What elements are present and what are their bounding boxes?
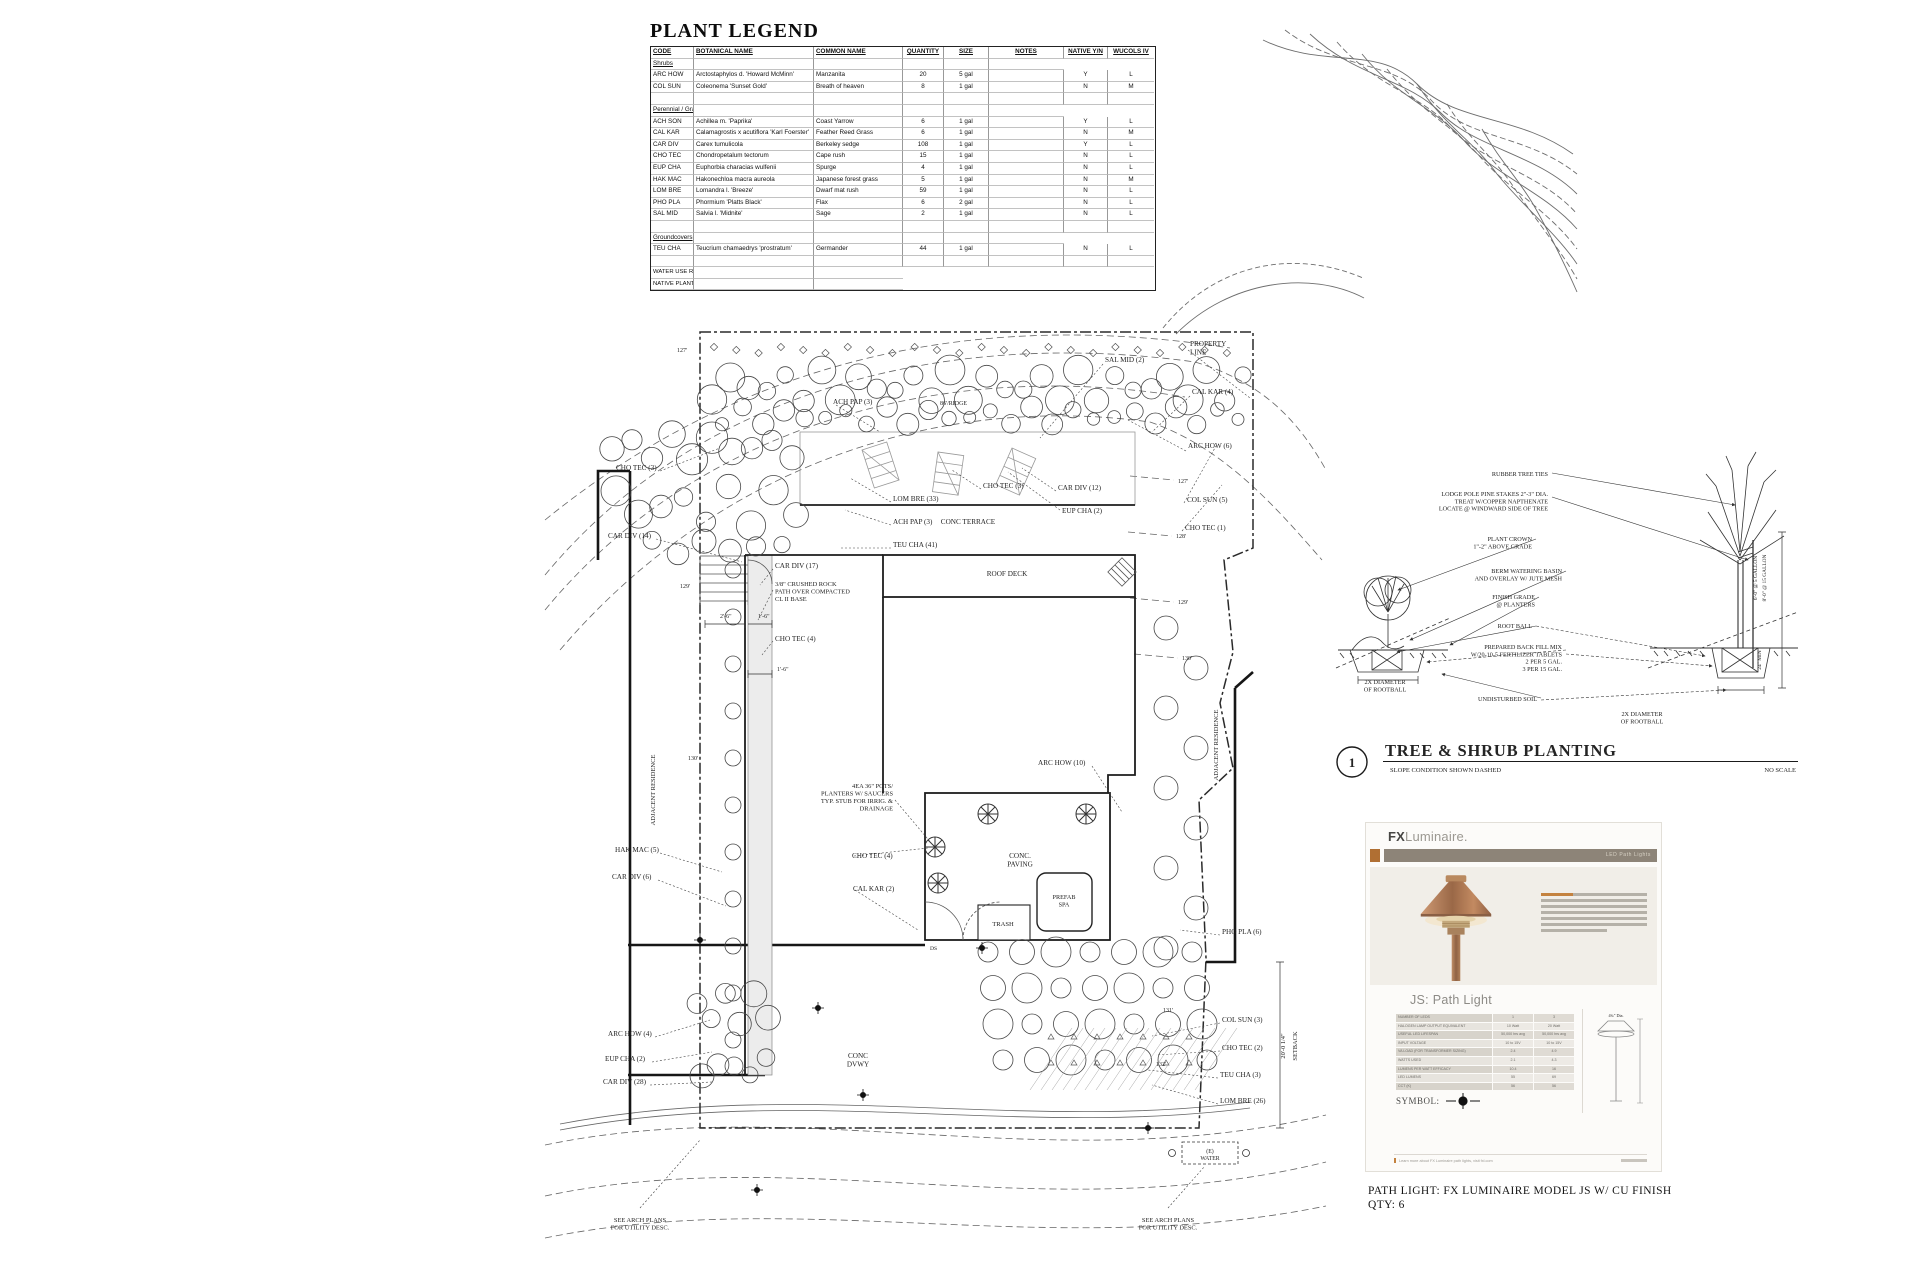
legend-cell — [1108, 93, 1154, 105]
legend-cell: 1 gal — [944, 128, 989, 140]
annotation-label: 127' — [1178, 479, 1188, 485]
legend-cell: ARC HOW — [651, 70, 694, 82]
fx-cutsheet: FXLuminaire. LED Path Lights — [1365, 822, 1662, 1172]
legend-cell: Perennial / Grasses / Vines — [651, 105, 694, 117]
legend-cell: CODE — [651, 47, 694, 59]
legend-cell — [1108, 256, 1154, 268]
legend-cell: Groundcovers — [651, 233, 694, 245]
legend-cell: 4 — [903, 163, 944, 175]
annotation-label: 2X DIAMETEROF ROOTBALL — [1621, 711, 1664, 725]
annotation-label: BERM WATERING BASINAND OVERLAY W/ JUTE M… — [1475, 568, 1563, 582]
legend-cell — [944, 59, 989, 71]
annotation-label: UNDISTURBED SOIL — [1478, 696, 1537, 703]
annotation-label: ACH PAP (3) — [893, 518, 933, 526]
legend-cell — [694, 279, 814, 291]
legend-row: EUP CHAEuphorbia characias wulfeniiSpurg… — [651, 163, 1155, 175]
detail-scale: NO SCALE — [1764, 767, 1796, 774]
crushed-rock-path — [748, 555, 772, 1075]
legend-cell — [694, 93, 814, 105]
legend-cell: 1 gal — [944, 140, 989, 152]
fx-logo: FXLuminaire. — [1388, 829, 1468, 844]
legend-cell — [1064, 256, 1108, 268]
legend-cell — [694, 105, 814, 117]
annotation-label: 130' — [1182, 656, 1192, 662]
legend-cell: 44 — [903, 244, 944, 256]
spec-cell: 55 — [1493, 1074, 1533, 1082]
legend-cell — [814, 233, 903, 245]
annotation-label: ARC HOW (4) — [608, 1030, 652, 1038]
annotation-label: 20'-0 1/4" — [1280, 1033, 1287, 1059]
annotation-label: PLANT CROWN1"-2" ABOVE GRADE — [1473, 536, 1532, 550]
legend-cell: Teucrium chamaedrys 'prostratum' — [694, 244, 814, 256]
legend-cell — [944, 233, 989, 245]
annotation-label: 129' — [1178, 600, 1188, 606]
spec-cell: 10 to 15V — [1534, 1040, 1574, 1048]
spec-cell: 10 to 15V — [1493, 1040, 1533, 1048]
annotation-label: PROPERTYLINE — [1190, 340, 1227, 356]
annotation-label: PHO PLA (6) — [1222, 928, 1262, 936]
legend-cell: WATER USE RATINGS OBTAINED FROM THE "WAT… — [651, 267, 694, 279]
product-description-text — [1541, 893, 1647, 935]
legend-row: PHO PLAPhormium 'Platts Black'Flax62 gal… — [651, 198, 1155, 210]
spec-cell: INPUT VOLTAGE — [1396, 1040, 1492, 1048]
legend-cell — [989, 140, 1064, 152]
legend-row: WATER USE RATINGS OBTAINED FROM THE "WAT… — [651, 267, 1155, 279]
legend-cell: PHO PLA — [651, 198, 694, 210]
product-name: JS: Path Light — [1410, 993, 1492, 1007]
annotation-label: FINISH GRADE@ PLANTERS — [1492, 594, 1535, 608]
legend-cell: COMMON NAME — [814, 47, 903, 59]
spec-row: WATTS USED2.14.3 — [1396, 1057, 1574, 1065]
legend-cell — [694, 256, 814, 268]
legend-cell: Achillea m. 'Paprika' — [694, 117, 814, 129]
legend-cell: N — [1064, 163, 1108, 175]
legend-cell: L — [1108, 163, 1154, 175]
legend-cell — [903, 105, 944, 117]
legend-cell: N — [1064, 128, 1108, 140]
annotation-label: LODGE POLE PINE STAKES 2"-3" DIA.TREAT W… — [1439, 491, 1549, 513]
legend-cell — [989, 128, 1064, 140]
legend-cell: Cape rush — [814, 151, 903, 163]
spec-cell: USEFUL LED LIFESPAN — [1396, 1031, 1492, 1039]
annotation-label: 2'-6" — [720, 614, 732, 620]
annotation-label: DS — [930, 946, 937, 952]
spec-cell: LUMENS PER WATT EFFICACY — [1396, 1066, 1492, 1074]
legend-cell: Euphorbia characias wulfenii — [694, 163, 814, 175]
annotation-label: 1'-6" — [777, 667, 789, 673]
annotation-label: ADJACENT RESIDENCE — [1213, 710, 1220, 781]
annotation-label: ACH PAP (3) — [833, 398, 873, 406]
legend-cell: 108 — [903, 140, 944, 152]
spec-cell: CCT (K) — [1396, 1083, 1492, 1091]
banner-accent — [1370, 849, 1380, 862]
legend-cell: Breath of heaven — [814, 82, 903, 94]
annotation-label: CHO TEC (4) — [852, 852, 893, 860]
legend-cell: L — [1108, 117, 1154, 129]
annotation-label: CAR DIV (12) — [1058, 484, 1102, 492]
legend-cell: 6 — [903, 128, 944, 140]
tree-section — [1648, 452, 1798, 694]
spec-cell: 4.3 — [1534, 1057, 1574, 1065]
detail-number: 1 — [1349, 755, 1356, 770]
annotation-label: 130' — [688, 756, 698, 762]
legend-cell: Feather Reed Grass — [814, 128, 903, 140]
legend-cell: 5 — [903, 175, 944, 187]
legend-cell: Hakonechloa macra aureola — [694, 175, 814, 187]
spec-row: LUMENS PER WATT EFFICACY10.416 — [1396, 1066, 1574, 1074]
annotation-label: TEU CHA (41) — [893, 541, 938, 549]
site-plan-drawing: ACH PAP (3)86'/RIDGESAL MID (2)PROPERTYL… — [540, 300, 1330, 1270]
footer-accent — [1394, 1158, 1396, 1163]
spec-cell: LED LUMENS — [1396, 1074, 1492, 1082]
spec-cell: 2.4 — [1493, 1048, 1533, 1056]
annotation-label: CONCDVWY — [847, 1052, 870, 1068]
annotation-label: COL SUN (5) — [1187, 496, 1228, 504]
annotation-label: CAR DIV (28) — [603, 1078, 647, 1086]
annotation-label: ARC HOW (10) — [1038, 759, 1086, 767]
legend-cell: Phormium 'Platts Black' — [694, 198, 814, 210]
legend-cell — [814, 279, 903, 291]
legend-cell — [814, 93, 903, 105]
legend-cell: L — [1108, 209, 1154, 221]
annotation-label: CONC TERRACE — [941, 518, 996, 526]
annotation-label: TRASH — [992, 921, 1014, 928]
legend-cell — [989, 186, 1064, 198]
legend-cell — [903, 233, 944, 245]
annotation-label: LOM BRE (33) — [893, 495, 939, 503]
legend-cell: 1 gal — [944, 151, 989, 163]
annotation-label: EUP CHA (2) — [605, 1055, 646, 1063]
banner-label: LED Path Lights — [1606, 852, 1651, 858]
legend-cell: Germander — [814, 244, 903, 256]
plant-legend-table: CODEBOTANICAL NAMECOMMON NAMEQUANTITYSIZ… — [650, 46, 1156, 291]
detail-title: TREE & SHRUB PLANTING — [1385, 741, 1617, 760]
annotation-label: ROOT BALL — [1498, 623, 1533, 630]
annotation-label: SAL MID (2) — [1105, 356, 1145, 364]
annotation-label: CAR DIV (6) — [612, 873, 652, 881]
legend-cell: M — [1108, 82, 1154, 94]
legend-cell: Berkeley sedge — [814, 140, 903, 152]
detail-subtitle: SLOPE CONDITION SHOWN DASHED — [1390, 767, 1501, 774]
legend-row: ACH SONAchillea m. 'Paprika'Coast Yarrow… — [651, 117, 1155, 129]
annotation-label: SETBACK — [1292, 1031, 1299, 1061]
legend-cell: LOM BRE — [651, 186, 694, 198]
annotation-label: (E)WATER — [1200, 1148, 1219, 1162]
spec-cell: 56 — [1534, 1083, 1574, 1091]
annotation-label: CHO TEC (4) — [775, 635, 816, 643]
legend-cell: NATIVE PLANTS INFORMATION OBTAINED FROM … — [651, 279, 694, 291]
annotation-label: SEE ARCH PLANSFOR UTILITY DESC. — [1139, 1217, 1198, 1232]
legend-row: NATIVE PLANTS INFORMATION OBTAINED FROM … — [651, 279, 1155, 291]
annotation-label: ROOF DECK — [987, 570, 1028, 578]
legend-cell: Carex tumulicola — [694, 140, 814, 152]
legend-cell — [989, 209, 1064, 221]
path-light-note-line2: QTY: 6 — [1368, 1198, 1708, 1212]
plant-legend-title: PLANT LEGEND — [650, 20, 819, 43]
legend-cell: CAL KAR — [651, 128, 694, 140]
legend-cell — [903, 93, 944, 105]
path-light-note: PATH LIGHT: FX LUMINAIRE MODEL JS W/ CU … — [1368, 1184, 1708, 1212]
legend-cell: 6 — [903, 198, 944, 210]
legend-cell: Y — [1064, 140, 1108, 152]
legend-cell: Coleonema 'Sunset Gold' — [694, 82, 814, 94]
legend-cell: 5 gal — [944, 70, 989, 82]
legend-cell: Calamagrostis x acutiflora 'Karl Foerste… — [694, 128, 814, 140]
annotation-label: 4EA 36" POTS/PLANTERS W/ SAUCERSTYP. STU… — [821, 783, 894, 813]
legend-cell: QUANTITY — [903, 47, 944, 59]
legend-cell — [1064, 221, 1108, 233]
legend-cell — [989, 163, 1064, 175]
legend-cell — [989, 117, 1064, 129]
legend-row — [651, 93, 1155, 105]
legend-cell — [694, 267, 814, 279]
groundcover-symbols — [710, 343, 1230, 1065]
conc-terrace — [800, 432, 1135, 505]
symbol-label: SYMBOL: — [1396, 1096, 1440, 1106]
spec-cell: WATTS USED — [1396, 1057, 1492, 1065]
legend-cell — [903, 59, 944, 71]
legend-cell — [944, 256, 989, 268]
annotation-label: CHO TEC (3) — [983, 482, 1024, 490]
annotation-label: 128' — [1176, 534, 1186, 540]
legend-cell: NATIVE Y/N — [1064, 47, 1108, 59]
legend-cell: COL SUN — [651, 82, 694, 94]
detail-callouts: RUBBER TREE TIESLODGE POLE PINE STAKES 2… — [1364, 471, 1768, 725]
annotation-label: 1'-6" — [758, 614, 770, 620]
footer-right-text — [1621, 1159, 1647, 1162]
spec-cell: 50,000 hrs avg — [1534, 1031, 1574, 1039]
legend-cell: Spurge — [814, 163, 903, 175]
annotation-label: CAL KAR (2) — [853, 885, 895, 893]
legend-cell — [1108, 221, 1154, 233]
annotation-label: 6'-0" @ 5 GALLON — [1753, 556, 1759, 600]
landscape-plan-sheet: PLANT LEGEND CODEBOTANICAL NAMECOMMON NA… — [0, 0, 1920, 1270]
annotation-label: 131' — [1163, 1008, 1173, 1014]
legend-cell: 2 — [903, 209, 944, 221]
legend-row: COL SUNColeonema 'Sunset Gold'Breath of … — [651, 82, 1155, 94]
legend-cell: TEU CHA — [651, 244, 694, 256]
fixture-dim-label: 4¾" Dia. — [1608, 1013, 1623, 1018]
annotation-label: CAR DIV (17) — [775, 562, 819, 570]
spec-cell: 56 — [1493, 1083, 1533, 1091]
legend-cell: 8 — [903, 82, 944, 94]
legend-cell — [651, 221, 694, 233]
spec-cell: 3 — [1534, 1014, 1574, 1022]
stairs — [700, 556, 748, 605]
legend-cell: ACH SON — [651, 117, 694, 129]
product-photo-area — [1370, 867, 1657, 985]
groundcover-hatch — [1030, 1028, 1237, 1090]
legend-cell — [903, 221, 944, 233]
legend-cell — [989, 244, 1064, 256]
spec-cell: NUMBER OF LEDS — [1396, 1014, 1492, 1022]
spec-cell: HALOGEN LAMP OUTPUT EQUIVALENT — [1396, 1023, 1492, 1031]
legend-row: Shrubs — [651, 59, 1155, 71]
detail-titleblock: 1 TREE & SHRUB PLANTING SLOPE CONDITION … — [1337, 741, 1798, 777]
path-light-photo — [1396, 871, 1516, 981]
legend-cell: EUP CHA — [651, 163, 694, 175]
legend-cell: Sage — [814, 209, 903, 221]
spec-cell: 1 — [1493, 1014, 1533, 1022]
legend-cell: Shrubs — [651, 59, 694, 71]
legend-cell: 1 gal — [944, 117, 989, 129]
annotation-label: CAR DIV (14) — [608, 532, 652, 540]
legend-cell: Japanese forest grass — [814, 175, 903, 187]
annotation-label: RUBBER TREE TIES — [1492, 471, 1549, 478]
legend-cell: Lomandra l. 'Breeze' — [694, 186, 814, 198]
legend-cell: Chondropetalum tectorum — [694, 151, 814, 163]
spec-row: USEFUL LED LIFESPAN50,000 hrs avg50,000 … — [1396, 1031, 1574, 1039]
legend-cell — [814, 105, 903, 117]
legend-cell: N — [1064, 151, 1108, 163]
legend-cell — [814, 59, 903, 71]
spec-cell: 4.9 — [1534, 1048, 1574, 1056]
cutsheet-banner: LED Path Lights — [1370, 849, 1657, 862]
legend-cell — [814, 221, 903, 233]
legend-cell — [989, 198, 1064, 210]
spec-table: NUMBER OF LEDS13HALOGEN LAMP OUTPUT EQUI… — [1396, 1014, 1574, 1091]
legend-cell: 20 — [903, 70, 944, 82]
legend-row: Perennial / Grasses / Vines — [651, 105, 1155, 117]
annotation-label: CHO TEC (1) — [1185, 524, 1226, 532]
legend-cell: N — [1064, 175, 1108, 187]
legend-cell: SAL MID — [651, 209, 694, 221]
legend-cell — [944, 105, 989, 117]
legend-cell: L — [1108, 244, 1154, 256]
spec-row: NUMBER OF LEDS13 — [1396, 1014, 1574, 1022]
annotation-label: CONC.PAVING — [1007, 852, 1033, 868]
legend-cell — [1064, 93, 1108, 105]
legend-cell: HAK MAC — [651, 175, 694, 187]
annotation-label: 129' — [680, 584, 690, 590]
legend-cell: CHO TEC — [651, 151, 694, 163]
fixture-line-drawing: 4¾" Dia. — [1590, 1009, 1648, 1117]
spec-cell: 2.1 — [1493, 1057, 1533, 1065]
legend-cell — [694, 233, 814, 245]
legend-cell: 1 gal — [944, 209, 989, 221]
annotation-label: 127' — [677, 348, 687, 354]
legend-row: ARC HOWArctostaphylos d. 'Howard McMinn'… — [651, 70, 1155, 82]
spec-row: HALOGEN LAMP OUTPUT EQUIVALENT10 Watt20 … — [1396, 1023, 1574, 1031]
legend-cell — [989, 105, 1064, 117]
legend-cell: SIZE — [944, 47, 989, 59]
legend-cell — [989, 151, 1064, 163]
planting-circles — [600, 355, 1251, 1088]
legend-row — [651, 221, 1155, 233]
annotation-label: LOM BRE (26) — [1220, 1097, 1266, 1105]
spec-cell: 50,000 hrs avg — [1493, 1031, 1533, 1039]
legend-cell: Manzanita — [814, 70, 903, 82]
annotation-label: CHO TEC (3) — [616, 464, 657, 472]
legend-cell: N — [1064, 244, 1108, 256]
legend-cell: M — [1108, 128, 1154, 140]
legend-row: CAL KARCalamagrostis x acutiflora 'Karl … — [651, 128, 1155, 140]
symbol-row: SYMBOL: — [1396, 1093, 1480, 1109]
legend-cell: 1 gal — [944, 244, 989, 256]
annotation-label: HAK MAC (5) — [615, 846, 660, 854]
legend-row: HAK MACHakonechloa macra aureolaJapanese… — [651, 175, 1155, 187]
legend-cell: N — [1064, 209, 1108, 221]
spec-cell: 69 — [1534, 1074, 1574, 1082]
legend-cell: Y — [1064, 70, 1108, 82]
legend-cell: 15 — [903, 151, 944, 163]
legend-cell — [989, 175, 1064, 187]
legend-cell — [989, 233, 1064, 245]
spec-row: INPUT VOLTAGE10 to 15V10 to 15V — [1396, 1040, 1574, 1048]
annotation-label: 132' — [1156, 1062, 1166, 1068]
legend-cell: L — [1108, 198, 1154, 210]
legend-cell — [989, 256, 1064, 268]
spec-row: CCT (K)5656 — [1396, 1083, 1574, 1091]
legend-cell: 1 gal — [944, 163, 989, 175]
legend-cell: L — [1108, 186, 1154, 198]
legend-cell: M — [1108, 175, 1154, 187]
annotation-label: COL SUN (3) — [1222, 1016, 1263, 1024]
annotation-label: 8'-0" @ 15 GALLON — [1762, 554, 1768, 601]
legend-cell — [694, 59, 814, 71]
legend-cell: NOTES — [989, 47, 1064, 59]
legend-cell: N — [1064, 186, 1108, 198]
legend-cell: L — [1108, 70, 1154, 82]
divider — [1582, 1009, 1583, 1113]
annotation-label: ARC HOW (6) — [1188, 442, 1232, 450]
legend-cell: Salvia l. 'Midnite' — [694, 209, 814, 221]
legend-cell: L — [1108, 151, 1154, 163]
annotation-label: 3/8" CRUSHED ROCKPATH OVER COMPACTEDCL I… — [775, 581, 850, 603]
legend-cell: L — [1108, 140, 1154, 152]
legend-cell: 59 — [903, 186, 944, 198]
legend-row: CAR DIVCarex tumulicolaBerkeley sedge108… — [651, 140, 1155, 152]
annotation-label: CHO TEC (2) — [1222, 1044, 1263, 1052]
legend-cell: Flax — [814, 198, 903, 210]
annotation-label: PREPARED BACK FILL MIXW/20-10-5 FERTILIZ… — [1471, 644, 1563, 673]
cutsheet-footer: Learn more about FX Luminaire path light… — [1394, 1154, 1647, 1163]
legend-row: Groundcovers — [651, 233, 1155, 245]
legend-cell — [944, 93, 989, 105]
spec-cell: 10 Watt — [1493, 1023, 1533, 1031]
spec-cell: 10.4 — [1493, 1066, 1533, 1074]
annotation-label: SEE ARCH PLANSFOR UTILITY DESC. — [611, 1217, 670, 1232]
legend-cell: Y — [1064, 117, 1108, 129]
legend-row — [651, 256, 1155, 268]
legend-cell: WUCOLS IV — [1108, 47, 1154, 59]
spec-cell: VA LOAD (FOR TRANSFORMER SIZING) — [1396, 1048, 1492, 1056]
legend-cell: Dwarf mat rush — [814, 186, 903, 198]
legend-cell — [814, 256, 903, 268]
footer-text: Learn more about FX Luminaire path light… — [1399, 1159, 1493, 1163]
legend-cell: CAR DIV — [651, 140, 694, 152]
annotation-label: 24" MIN — [1757, 650, 1763, 670]
legend-cell: N — [1064, 198, 1108, 210]
annotation-label: ADJACENT RESIDENCE — [650, 755, 657, 826]
legend-cell — [651, 93, 694, 105]
legend-cell: 1 gal — [944, 186, 989, 198]
legend-cell: 1 gal — [944, 82, 989, 94]
legend-cell: 2 gal — [944, 198, 989, 210]
legend-cell — [989, 221, 1064, 233]
planting-detail-drawing: RUBBER TREE TIESLODGE POLE PINE STAKES 2… — [1330, 440, 1800, 785]
path-light-symbol-icon — [1446, 1093, 1480, 1109]
legend-cell: Arctostaphylos d. 'Howard McMinn' — [694, 70, 814, 82]
path-light-note-line1: PATH LIGHT: FX LUMINAIRE MODEL JS W/ CU … — [1368, 1184, 1708, 1198]
legend-row: CODEBOTANICAL NAMECOMMON NAMEQUANTITYSIZ… — [651, 47, 1155, 59]
legend-cell: 6 — [903, 117, 944, 129]
legend-cell — [989, 82, 1064, 94]
legend-cell — [694, 221, 814, 233]
legend-cell — [903, 256, 944, 268]
legend-cell: 1 gal — [944, 175, 989, 187]
spec-cell: 20 Watt — [1534, 1023, 1574, 1031]
